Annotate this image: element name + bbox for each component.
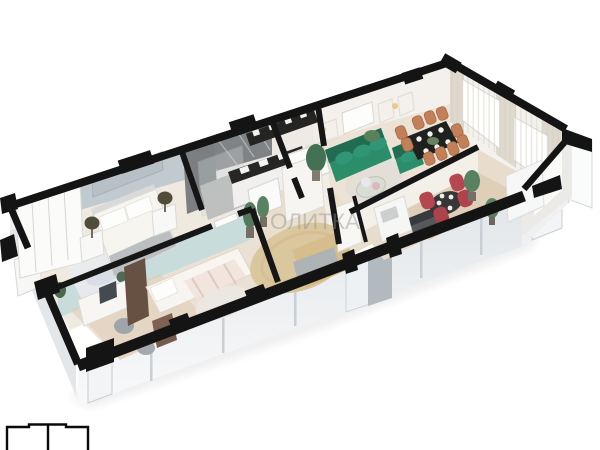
svg-text:ОЛИТКА: ОЛИТКА xyxy=(270,209,360,234)
